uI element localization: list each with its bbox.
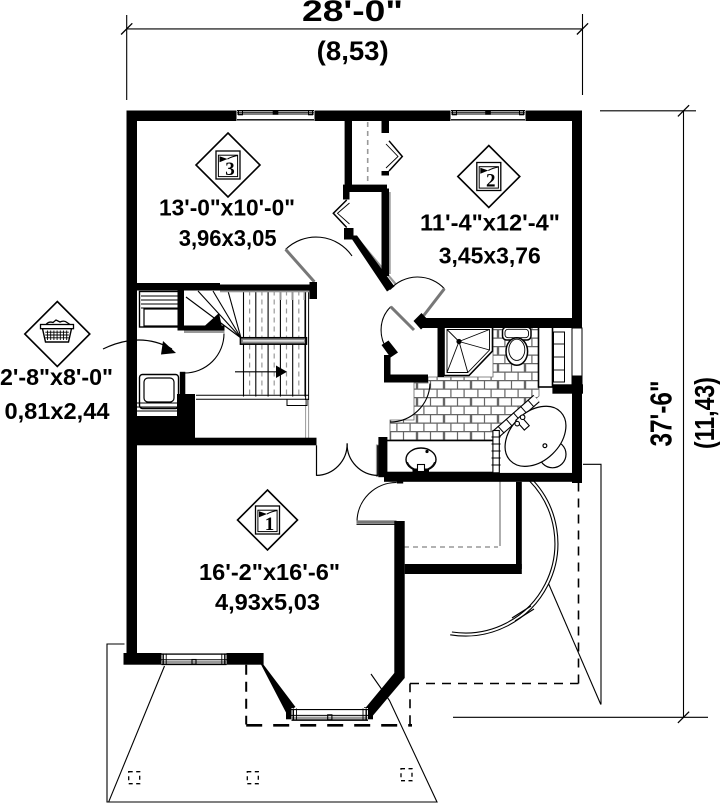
svg-text:0,81x2,44: 0,81x2,44 — [5, 398, 110, 424]
svg-text:3: 3 — [225, 159, 235, 180]
svg-text:4,93x5,03: 4,93x5,03 — [215, 589, 320, 615]
svg-text:3,96x3,05: 3,96x3,05 — [179, 225, 277, 251]
svg-text:1: 1 — [265, 514, 275, 535]
svg-text:37'-6": 37'-6" — [644, 381, 679, 447]
svg-text:28'-0": 28'-0" — [302, 0, 403, 28]
svg-text:16'-2"x16'-6": 16'-2"x16'-6" — [199, 559, 340, 585]
svg-text:(8,53): (8,53) — [317, 36, 389, 66]
svg-text:3,45x3,76: 3,45x3,76 — [439, 243, 541, 269]
svg-text:2: 2 — [486, 170, 496, 191]
svg-text:11'-4"x12'-4": 11'-4"x12'-4" — [420, 210, 560, 236]
svg-text:2'-8"x8'-0": 2'-8"x8'-0" — [0, 364, 113, 390]
svg-text:(11,43): (11,43) — [689, 377, 720, 449]
svg-text:13'-0"x10'-0": 13'-0"x10'-0" — [159, 195, 295, 221]
